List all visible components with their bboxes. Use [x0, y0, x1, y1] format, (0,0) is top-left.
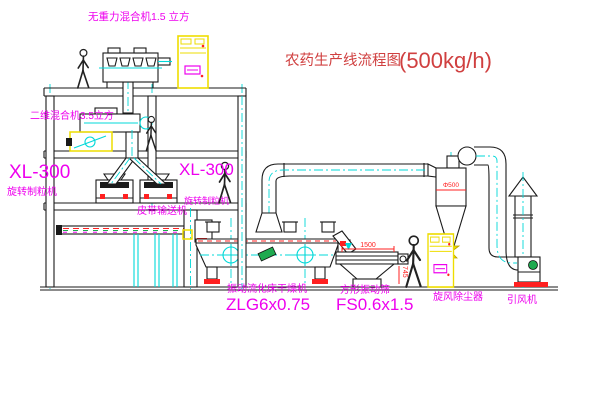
label-belt-conveyor: 皮带输送机	[137, 204, 187, 217]
label-dryer-model: ZLG6x0.75	[226, 295, 310, 314]
gravity-free-mixer	[99, 48, 172, 114]
cyclone-diameter-dim: Φ500	[443, 182, 459, 189]
fan-motor	[529, 261, 538, 270]
label-fan-name: 引风机	[507, 293, 537, 306]
label-sieve-model: FS0.6x1.5	[336, 295, 414, 314]
fan-base	[514, 282, 548, 287]
label-granulator-right-model: XL-300	[179, 160, 234, 179]
title-capacity: (500kg/h)	[399, 48, 492, 73]
outlet-elbow	[458, 147, 476, 165]
title-text: 农药生产线流程图	[285, 52, 401, 69]
label-dryer-name: 振动流化床干燥机	[227, 282, 307, 295]
worker-figure-roof	[78, 49, 89, 88]
control-cabinet-2	[428, 234, 454, 287]
label-granulator-right-name: 旋转制粒机	[184, 195, 229, 206]
cad-canvas: Φ500	[0, 0, 600, 403]
label-gravity-free-mixer: 无重力混合机1.5 立方	[88, 10, 190, 23]
fan-inlet-duct	[474, 147, 518, 270]
sieve-length-dim: 1500	[360, 242, 376, 249]
flow-diagram: Φ500	[0, 0, 600, 403]
y-chute	[107, 158, 166, 184]
label-cyclone-name: 旋风除尘器	[433, 290, 483, 303]
label-granulator-left-model: XL-300	[9, 162, 70, 183]
fluid-bed-dryer	[183, 213, 350, 284]
control-cabinet-1	[178, 36, 208, 88]
column-right	[238, 96, 246, 287]
drawing-title: 农药生产线流程图 (500kg/h)	[285, 48, 492, 73]
label-granulator-left-name: 旋转制粒机	[7, 185, 57, 198]
sieve-height-dim: 745	[401, 266, 408, 278]
belt-conveyor	[56, 225, 186, 287]
induced-draft-fan	[514, 257, 548, 287]
vibrating-sieve: 1500 745	[333, 231, 408, 287]
label-two-dim-mixer: 二维混合机3.5立方	[30, 109, 114, 122]
